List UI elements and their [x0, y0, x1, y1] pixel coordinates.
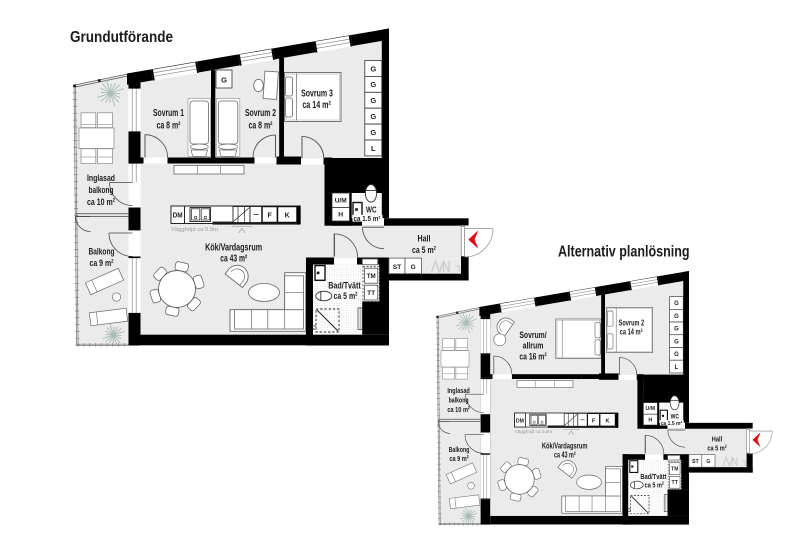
svg-text:WC: WC — [366, 205, 377, 215]
svg-text:G: G — [674, 314, 679, 320]
svg-text:G: G — [370, 112, 376, 121]
svg-text:G: G — [674, 352, 679, 358]
svg-text:Inglasad: Inglasad — [87, 173, 115, 184]
svg-text:ca 14 m²: ca 14 m² — [302, 99, 331, 111]
svg-text:ca 43 m²: ca 43 m² — [220, 253, 247, 265]
svg-text:ca 14 m²: ca 14 m² — [620, 326, 643, 336]
svg-text:F: F — [592, 418, 596, 424]
svg-text:ca 5 m²: ca 5 m² — [412, 245, 436, 256]
svg-text:ca 5 m²: ca 5 m² — [645, 480, 665, 489]
svg-text:Alternativ planlösning: Alternativ planlösning — [558, 244, 690, 261]
svg-text:G: G — [370, 128, 376, 137]
svg-text:TM: TM — [367, 273, 376, 280]
svg-text:ca 10 m²: ca 10 m² — [447, 405, 470, 414]
svg-text:K: K — [285, 213, 290, 220]
svg-text:Grundutförande: Grundutförande — [70, 29, 173, 46]
svg-text:Vägghöjd ca 0.9m: Vägghöjd ca 0.9m — [171, 227, 218, 233]
svg-text:ca 8 m²: ca 8 m² — [157, 120, 181, 132]
svg-text:ST: ST — [393, 264, 402, 271]
svg-text:F: F — [268, 213, 273, 220]
svg-text:Balkong: Balkong — [89, 247, 115, 258]
svg-text:K: K — [606, 418, 610, 424]
svg-text:ca 10 m²: ca 10 m² — [87, 197, 115, 208]
svg-text:G: G — [370, 64, 376, 73]
svg-text:TT: TT — [367, 290, 375, 297]
svg-text:G: G — [674, 301, 679, 307]
svg-text:Hall: Hall — [712, 434, 722, 443]
svg-text:ST: ST — [692, 459, 700, 465]
svg-text:TM: TM — [671, 466, 678, 472]
svg-text:Inglasad: Inglasad — [447, 386, 470, 395]
svg-text:DM: DM — [173, 213, 183, 220]
svg-text:ca 1.5 m²: ca 1.5 m² — [661, 420, 683, 427]
svg-text:ca 16 m²: ca 16 m² — [519, 351, 546, 361]
svg-text:U/M: U/M — [646, 406, 656, 412]
svg-text:H: H — [338, 212, 343, 219]
svg-text:WC: WC — [671, 413, 679, 420]
svg-text:G: G — [370, 80, 376, 89]
svg-text:U/M: U/M — [335, 198, 347, 205]
svg-text:G: G — [221, 75, 227, 84]
svg-text:ca 5 m²: ca 5 m² — [334, 291, 358, 302]
svg-text:Hall: Hall — [418, 234, 431, 245]
svg-text:H: H — [648, 417, 652, 423]
svg-text:Vägghöjd ca 0.9m: Vägghöjd ca 0.9m — [515, 429, 553, 434]
svg-text:balkong: balkong — [449, 396, 469, 405]
svg-text:Bad/Tvätt: Bad/Tvätt — [328, 281, 361, 292]
svg-text:G: G — [370, 96, 376, 105]
svg-text:Sovrum 2: Sovrum 2 — [245, 107, 276, 119]
svg-text:G: G — [411, 264, 416, 271]
svg-text:ca 9 m²: ca 9 m² — [90, 258, 114, 269]
svg-text:Balkong: Balkong — [449, 445, 470, 454]
svg-text:ca 1.5 m²: ca 1.5 m² — [354, 216, 382, 223]
svg-text:ca 5 m²: ca 5 m² — [707, 444, 727, 453]
svg-text:balkong: balkong — [89, 185, 114, 196]
svg-text:Sovrum 3: Sovrum 3 — [301, 88, 333, 100]
svg-text:ca 9 m²: ca 9 m² — [449, 454, 469, 463]
svg-text:G: G — [674, 339, 679, 345]
svg-text:L: L — [675, 365, 679, 371]
svg-text:DM: DM — [516, 418, 524, 424]
svg-text:ca 43 m²: ca 43 m² — [554, 449, 576, 459]
svg-text:L: L — [371, 144, 376, 153]
svg-text:G: G — [674, 327, 679, 333]
svg-text:TT: TT — [672, 480, 679, 486]
svg-text:G: G — [706, 459, 710, 465]
svg-text:Sovrum/: Sovrum/ — [519, 330, 547, 340]
svg-text:ca 8 m²: ca 8 m² — [249, 120, 273, 132]
svg-text:allrum: allrum — [523, 341, 544, 351]
svg-text:Sovrum 1: Sovrum 1 — [153, 107, 184, 119]
